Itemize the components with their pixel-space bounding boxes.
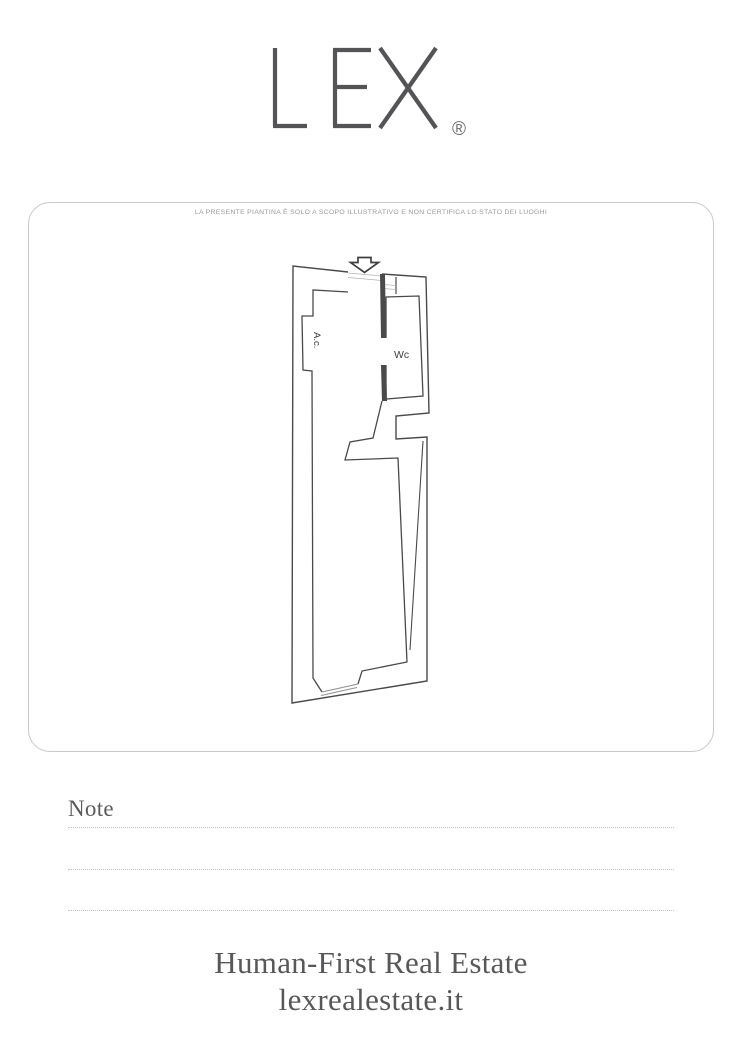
notes-title: Note xyxy=(68,796,114,821)
entrance-door-threshold xyxy=(348,273,382,281)
logo-letter-e xyxy=(333,50,371,126)
interior-wall-right xyxy=(345,401,407,684)
disclaimer-text: LA PRESENTE PIANTINA È SOLO A SCOPO ILLU… xyxy=(29,209,713,216)
wc-room-outline xyxy=(386,296,423,399)
logo-letter-l xyxy=(273,48,307,126)
page: { "logo": { "text": "LEX", "registered":… xyxy=(0,0,742,1050)
double-wall-line xyxy=(410,441,423,650)
entrance-arrow-icon xyxy=(351,258,379,273)
note-blank-line xyxy=(68,869,674,870)
corridor-wall xyxy=(380,274,387,401)
footer-website: lexrealestate.it xyxy=(0,981,742,1018)
logo-letter-x xyxy=(380,48,436,128)
registered-mark: ® xyxy=(452,119,466,140)
note-blank-line xyxy=(68,910,674,911)
notes-section: Note xyxy=(68,796,674,828)
logo-header: ® xyxy=(0,45,742,145)
room-label-ac: A.c. xyxy=(311,332,322,348)
footer: Human-First Real Estate lexrealestate.it xyxy=(0,944,742,1018)
footer-tagline: Human-First Real Estate xyxy=(0,944,742,981)
lex-logo: ® xyxy=(256,45,486,140)
floorplan-drawing: A.c. Wc xyxy=(265,250,440,715)
room-label-wc: Wc xyxy=(394,349,409,361)
interior-wall-left xyxy=(302,290,348,692)
